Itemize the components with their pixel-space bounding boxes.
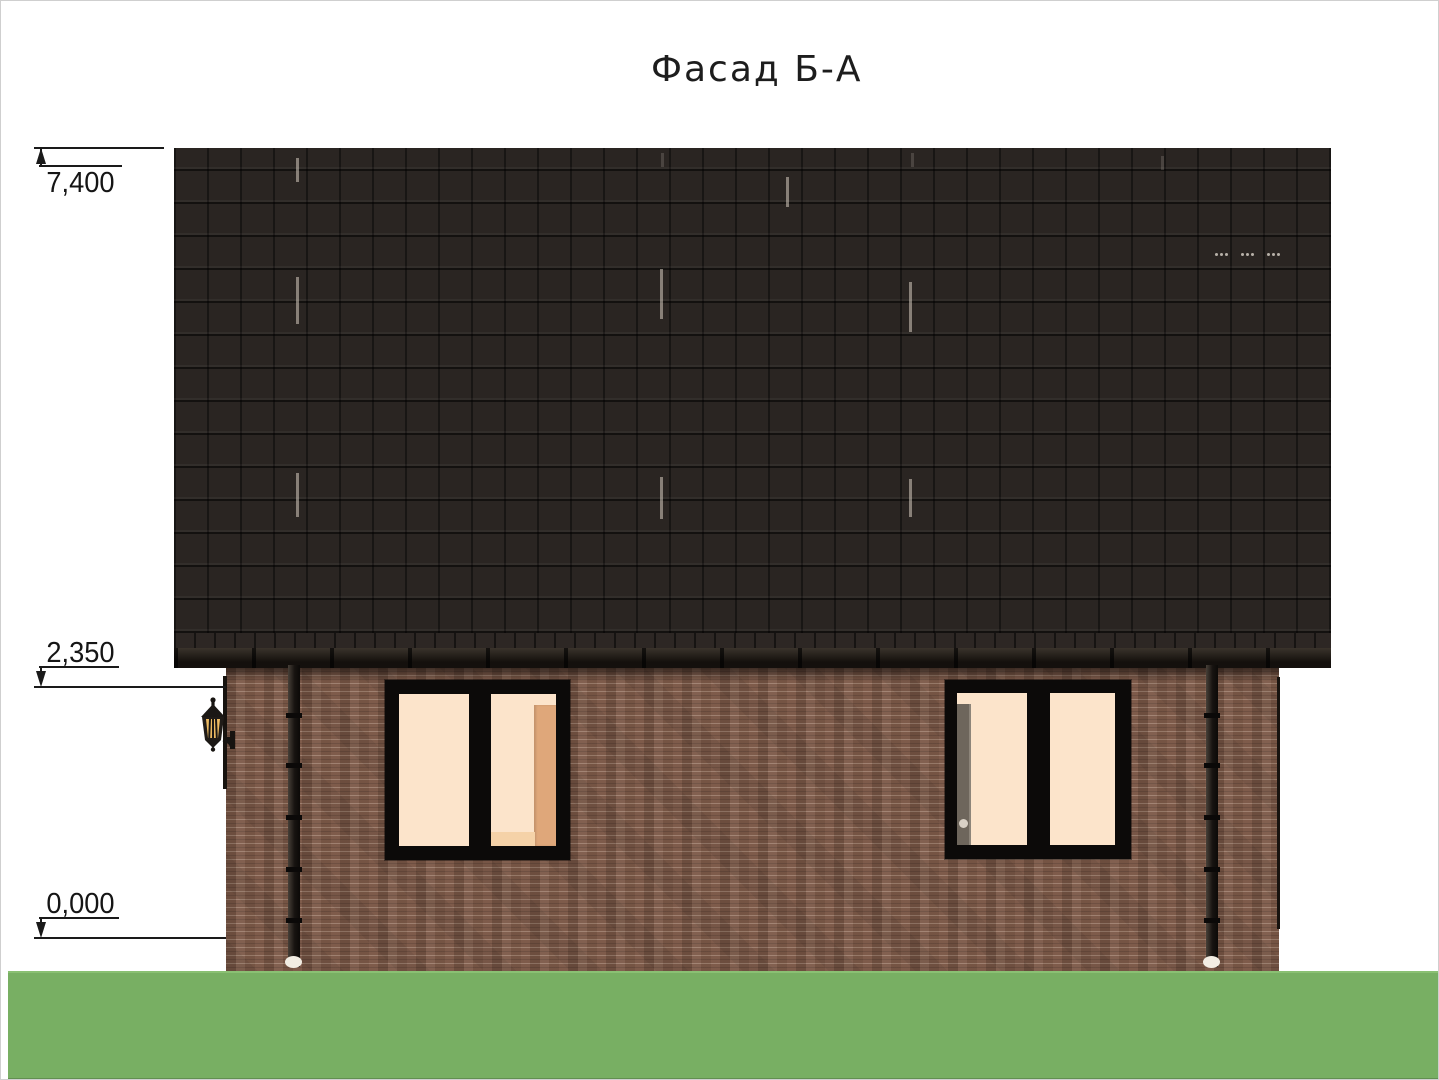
roof-vent-dot [1267,253,1270,256]
downpipe-left [288,665,300,967]
elevation-arrow-icon [36,671,46,687]
corner-trim-right [1277,677,1280,929]
window-right [945,680,1131,859]
roof-highlight-streak [296,158,299,182]
downpipe-outlet-right [1203,956,1220,968]
drawing-title: Фасад Б-А [651,49,863,90]
gutter-fascia [174,648,1331,668]
pipe-bracket [286,713,302,718]
window-left [385,680,570,860]
pipe-bracket [1204,713,1220,718]
roof-highlight-streak [296,277,299,324]
pipe-bracket [1204,815,1220,820]
dimension-line [34,686,226,688]
roof-vent-dot [1215,253,1218,256]
elevation-arrow-icon [36,922,46,938]
roof-highlight-streak [660,477,663,519]
roof-highlight-streak [661,153,664,167]
roof-vent-dot [1220,253,1223,256]
roof-highlight-streak [296,473,299,517]
facade-drawing: Фасад Б-А [0,0,1439,1080]
roof-highlight-streak [660,269,663,319]
elevation-value: 2,350 [41,637,120,670]
elevation-value: 7,400 [41,167,120,200]
roof-highlight-streak [1161,156,1164,170]
roof-edge-course [174,633,1331,648]
pipe-bracket [1204,918,1220,923]
wall-lantern-icon [194,697,236,761]
roof-tiles [174,148,1331,633]
pipe-bracket [286,867,302,872]
roof-vent-dot [1225,253,1228,256]
pipe-bracket [286,815,302,820]
elevation-value: 0,000 [41,888,120,921]
roof-vent-dot [1241,253,1244,256]
window-sill-light [491,832,535,846]
elevation-arrow-icon [36,148,46,164]
window-pane [491,694,556,846]
roof-highlight-streak [909,282,912,332]
roof-vent-dot [1246,253,1249,256]
downpipe-outlet-left [285,956,302,968]
window-pane [399,694,469,846]
dimension-line [34,147,164,149]
window-pane [1050,693,1115,845]
pipe-bracket [1204,867,1220,872]
interior-wall-glow [534,705,556,846]
pipe-bracket [286,763,302,768]
dimension-line [34,937,226,939]
roof-vent-dot [1272,253,1275,256]
downpipe-right [1206,665,1218,967]
window-pane [957,693,1027,845]
roof-vent-dot [1277,253,1280,256]
ground-grass [8,971,1438,1080]
roof-highlight-streak [786,177,789,207]
pipe-bracket [1204,763,1220,768]
roof-highlight-streak [911,153,914,167]
roof-highlight-streak [909,479,912,517]
window-handle-icon [959,819,968,828]
pipe-bracket [286,918,302,923]
roof-vent-dot [1251,253,1254,256]
